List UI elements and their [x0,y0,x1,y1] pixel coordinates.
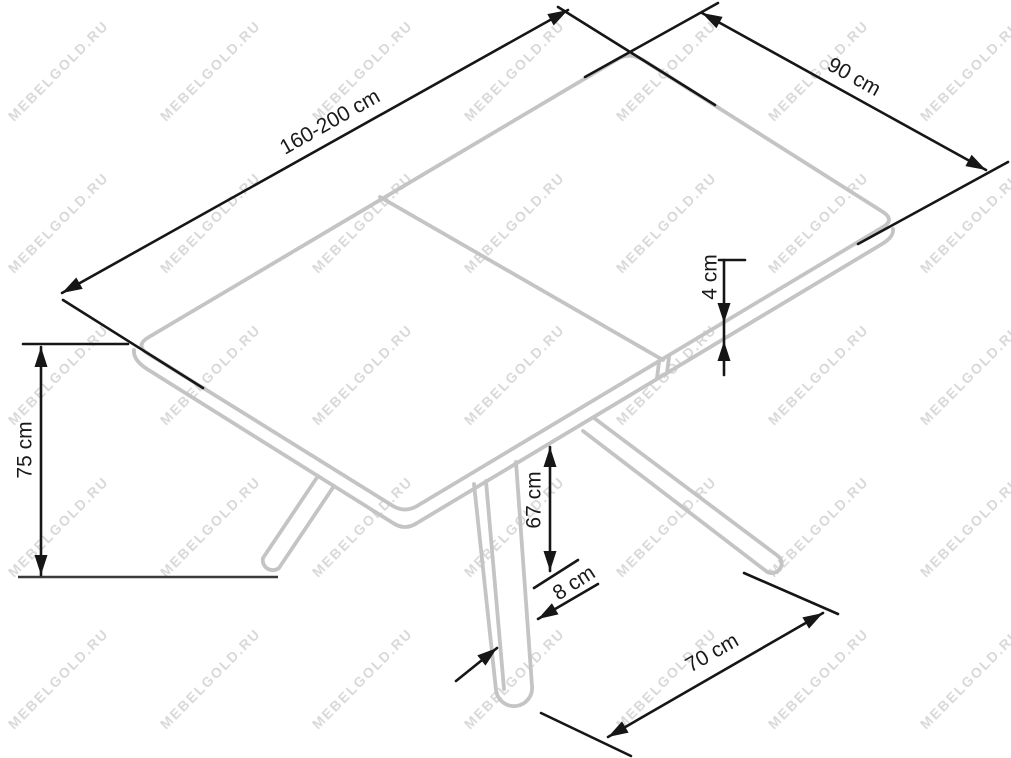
watermark-text: MEBELGOLD.RU [613,473,720,580]
arrowhead-height-up [35,347,48,367]
watermark-text: MEBELGOLD.RU [461,625,568,732]
arrowhead-base-spread-right [802,613,823,629]
watermark-text: MEBELGOLD.RU [917,625,1011,732]
dimension-label-clearance: 67 cm [523,471,546,528]
arrowhead-length-left [62,278,83,294]
watermark-text: MEBELGOLD.RU [917,473,1011,580]
arrowhead-width-right [965,155,986,170]
watermark-text: MEBELGOLD.RU [157,321,264,428]
watermark-text: MEBELGOLD.RU [5,473,112,580]
watermark-text: MEBELGOLD.RU [157,625,264,732]
dim-base-spread-extension-right [744,573,838,614]
dimension-diagram: MEBELGOLD.RUMEBELGOLD.RUMEBELGOLD.RUMEBE… [0,0,1011,758]
watermark-text: MEBELGOLD.RU [461,17,568,124]
arrowhead-height-down [35,555,48,575]
diagram-svg: MEBELGOLD.RUMEBELGOLD.RUMEBELGOLD.RUMEBE… [0,0,1011,758]
dimension-label-width: 90 cm [823,53,884,101]
table-leg-right [583,418,782,573]
watermark-text: MEBELGOLD.RU [157,169,264,276]
watermark-text: MEBELGOLD.RU [461,169,568,276]
watermark-text: MEBELGOLD.RU [917,321,1011,428]
watermark-text: MEBELGOLD.RU [5,17,112,124]
arrowhead-thickness-up [718,341,731,361]
dimension-label-thickness: 4 cm [699,254,722,300]
watermark-text: MEBELGOLD.RU [157,473,264,580]
watermark-text: MEBELGOLD.RU [765,625,872,732]
watermark-text: MEBELGOLD.RU [157,17,264,124]
watermark-text: MEBELGOLD.RU [309,625,416,732]
watermark-text: MEBELGOLD.RU [5,625,112,732]
arrowhead-leg-width-right [538,603,559,619]
dim-base-spread-line [608,613,823,737]
arrowhead-clearance-down [544,551,557,571]
watermark-text: MEBELGOLD.RU [461,321,568,428]
watermark-text: MEBELGOLD.RU [917,17,1011,124]
watermark-text: MEBELGOLD.RU [5,321,112,428]
dimension-label-height: 75 cm [14,421,37,478]
watermark-text: MEBELGOLD.RU [765,321,872,428]
arrowhead-clearance-up [544,447,557,467]
watermark-text: MEBELGOLD.RU [309,321,416,428]
tabletop-outline [141,56,889,510]
watermark-text: MEBELGOLD.RU [5,169,112,276]
watermark-text: MEBELGOLD.RU [613,625,720,732]
watermark-text: MEBELGOLD.RU [309,169,416,276]
dim-width-lines [585,3,1008,244]
